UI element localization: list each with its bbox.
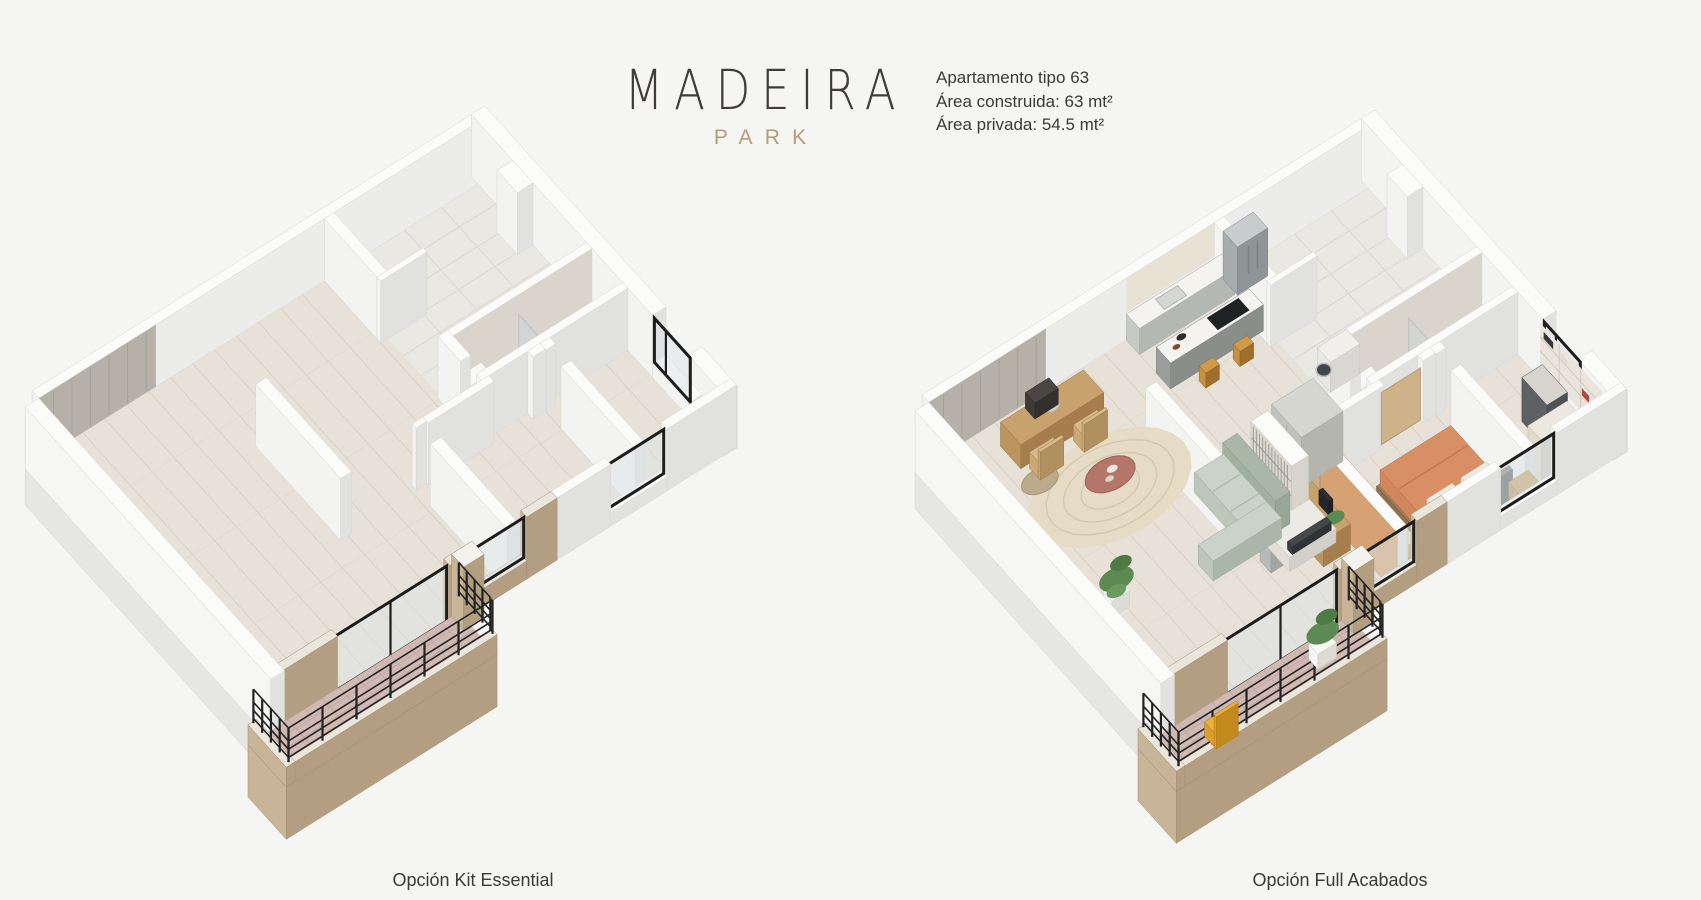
floorplan-render-full-acabados [890, 106, 1680, 866]
floorplan-full-acabados: Opción Full Acabados [890, 106, 1680, 896]
page: MADEIRA PARK Apartamento tipo 63 Área co… [0, 0, 1701, 900]
floorplan-kit-essential: Opción Kit Essential [18, 106, 808, 896]
floorplan-render-kit-essential [18, 106, 808, 866]
caption-full-acabados: Opción Full Acabados [945, 870, 1701, 891]
apartment-type: Apartamento tipo 63 [936, 66, 1113, 90]
caption-kit-essential: Opción Kit Essential [78, 870, 868, 891]
